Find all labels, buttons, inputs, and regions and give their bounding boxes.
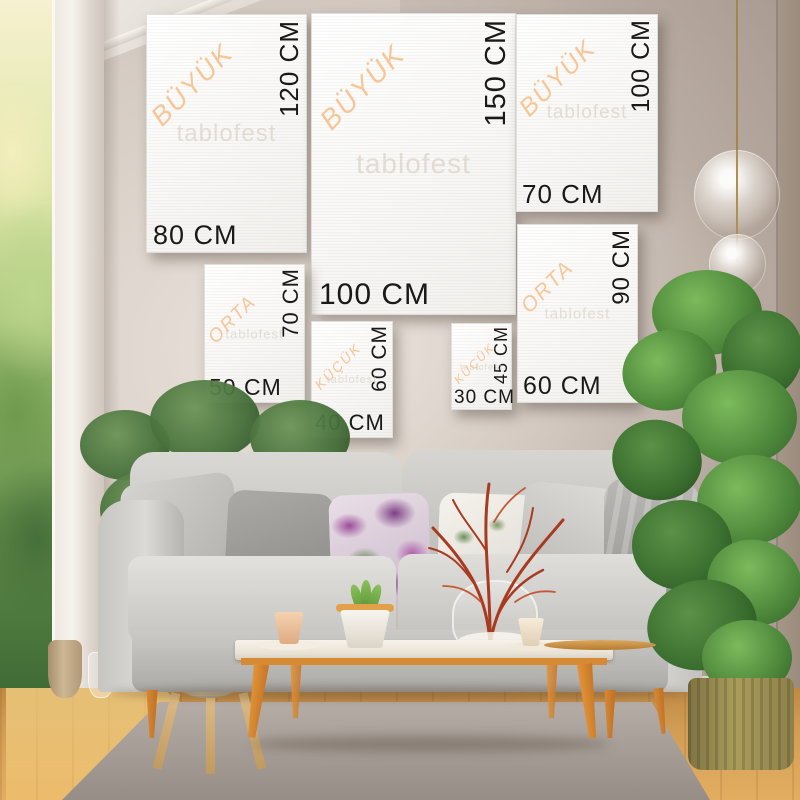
table-floor-shadow: [250, 736, 610, 752]
watermark-text: tablofest: [547, 102, 628, 124]
wooden-tray: [544, 640, 656, 650]
size-category-label: BÜYÜK: [314, 38, 412, 136]
monstera-plant: [612, 270, 800, 700]
watermark-text: tablofest: [545, 305, 611, 322]
width-dimension-label: 100 CM: [319, 278, 430, 312]
height-dimension-label: 45 CM: [491, 326, 512, 384]
coffee-table-apron: [241, 658, 607, 665]
width-dimension-label: 80 CM: [153, 220, 238, 251]
canvas-option-30x45: KÜÇÜK 45 CM 30 CM tablofest: [451, 323, 512, 410]
red-branch-arrangement: [395, 462, 585, 647]
height-dimension-label: 120 CM: [274, 20, 305, 117]
watermark-text: tablofest: [225, 326, 283, 341]
canvas-option-80x120: BÜYÜK 120 CM 80 CM tablofest: [146, 14, 307, 253]
product-size-guide-scene: BÜYÜK 120 CM 80 CM tablofest BÜYÜK 150 C…: [0, 0, 800, 800]
watermark-text: tablofest: [460, 362, 503, 372]
width-dimension-label: 30 CM: [454, 387, 515, 409]
watermark-text: tablofest: [356, 148, 471, 180]
height-dimension-label: 150 CM: [480, 19, 513, 127]
size-category-label: BÜYÜK: [145, 38, 240, 133]
small-vase: [48, 640, 82, 698]
watermark-text: tablofest: [177, 120, 277, 148]
width-dimension-label: 60 CM: [523, 372, 602, 401]
ribbed-planter: [688, 678, 794, 770]
stool-leg: [206, 696, 215, 774]
sofa-floor-shadow: [110, 686, 690, 700]
width-dimension-label: 70 CM: [522, 179, 604, 210]
canvas-option-100x150: BÜYÜK 150 CM 100 CM tablofest: [311, 13, 516, 315]
leaf-cluster: [150, 380, 260, 460]
window-glass: [0, 0, 52, 692]
pendant-cord: [736, 0, 738, 152]
canvas-option-70x100: BÜYÜK 100 CM 70 CM tablofest: [516, 14, 658, 212]
height-dimension-label: 100 CM: [627, 19, 656, 113]
succulent-pot: [340, 610, 390, 648]
